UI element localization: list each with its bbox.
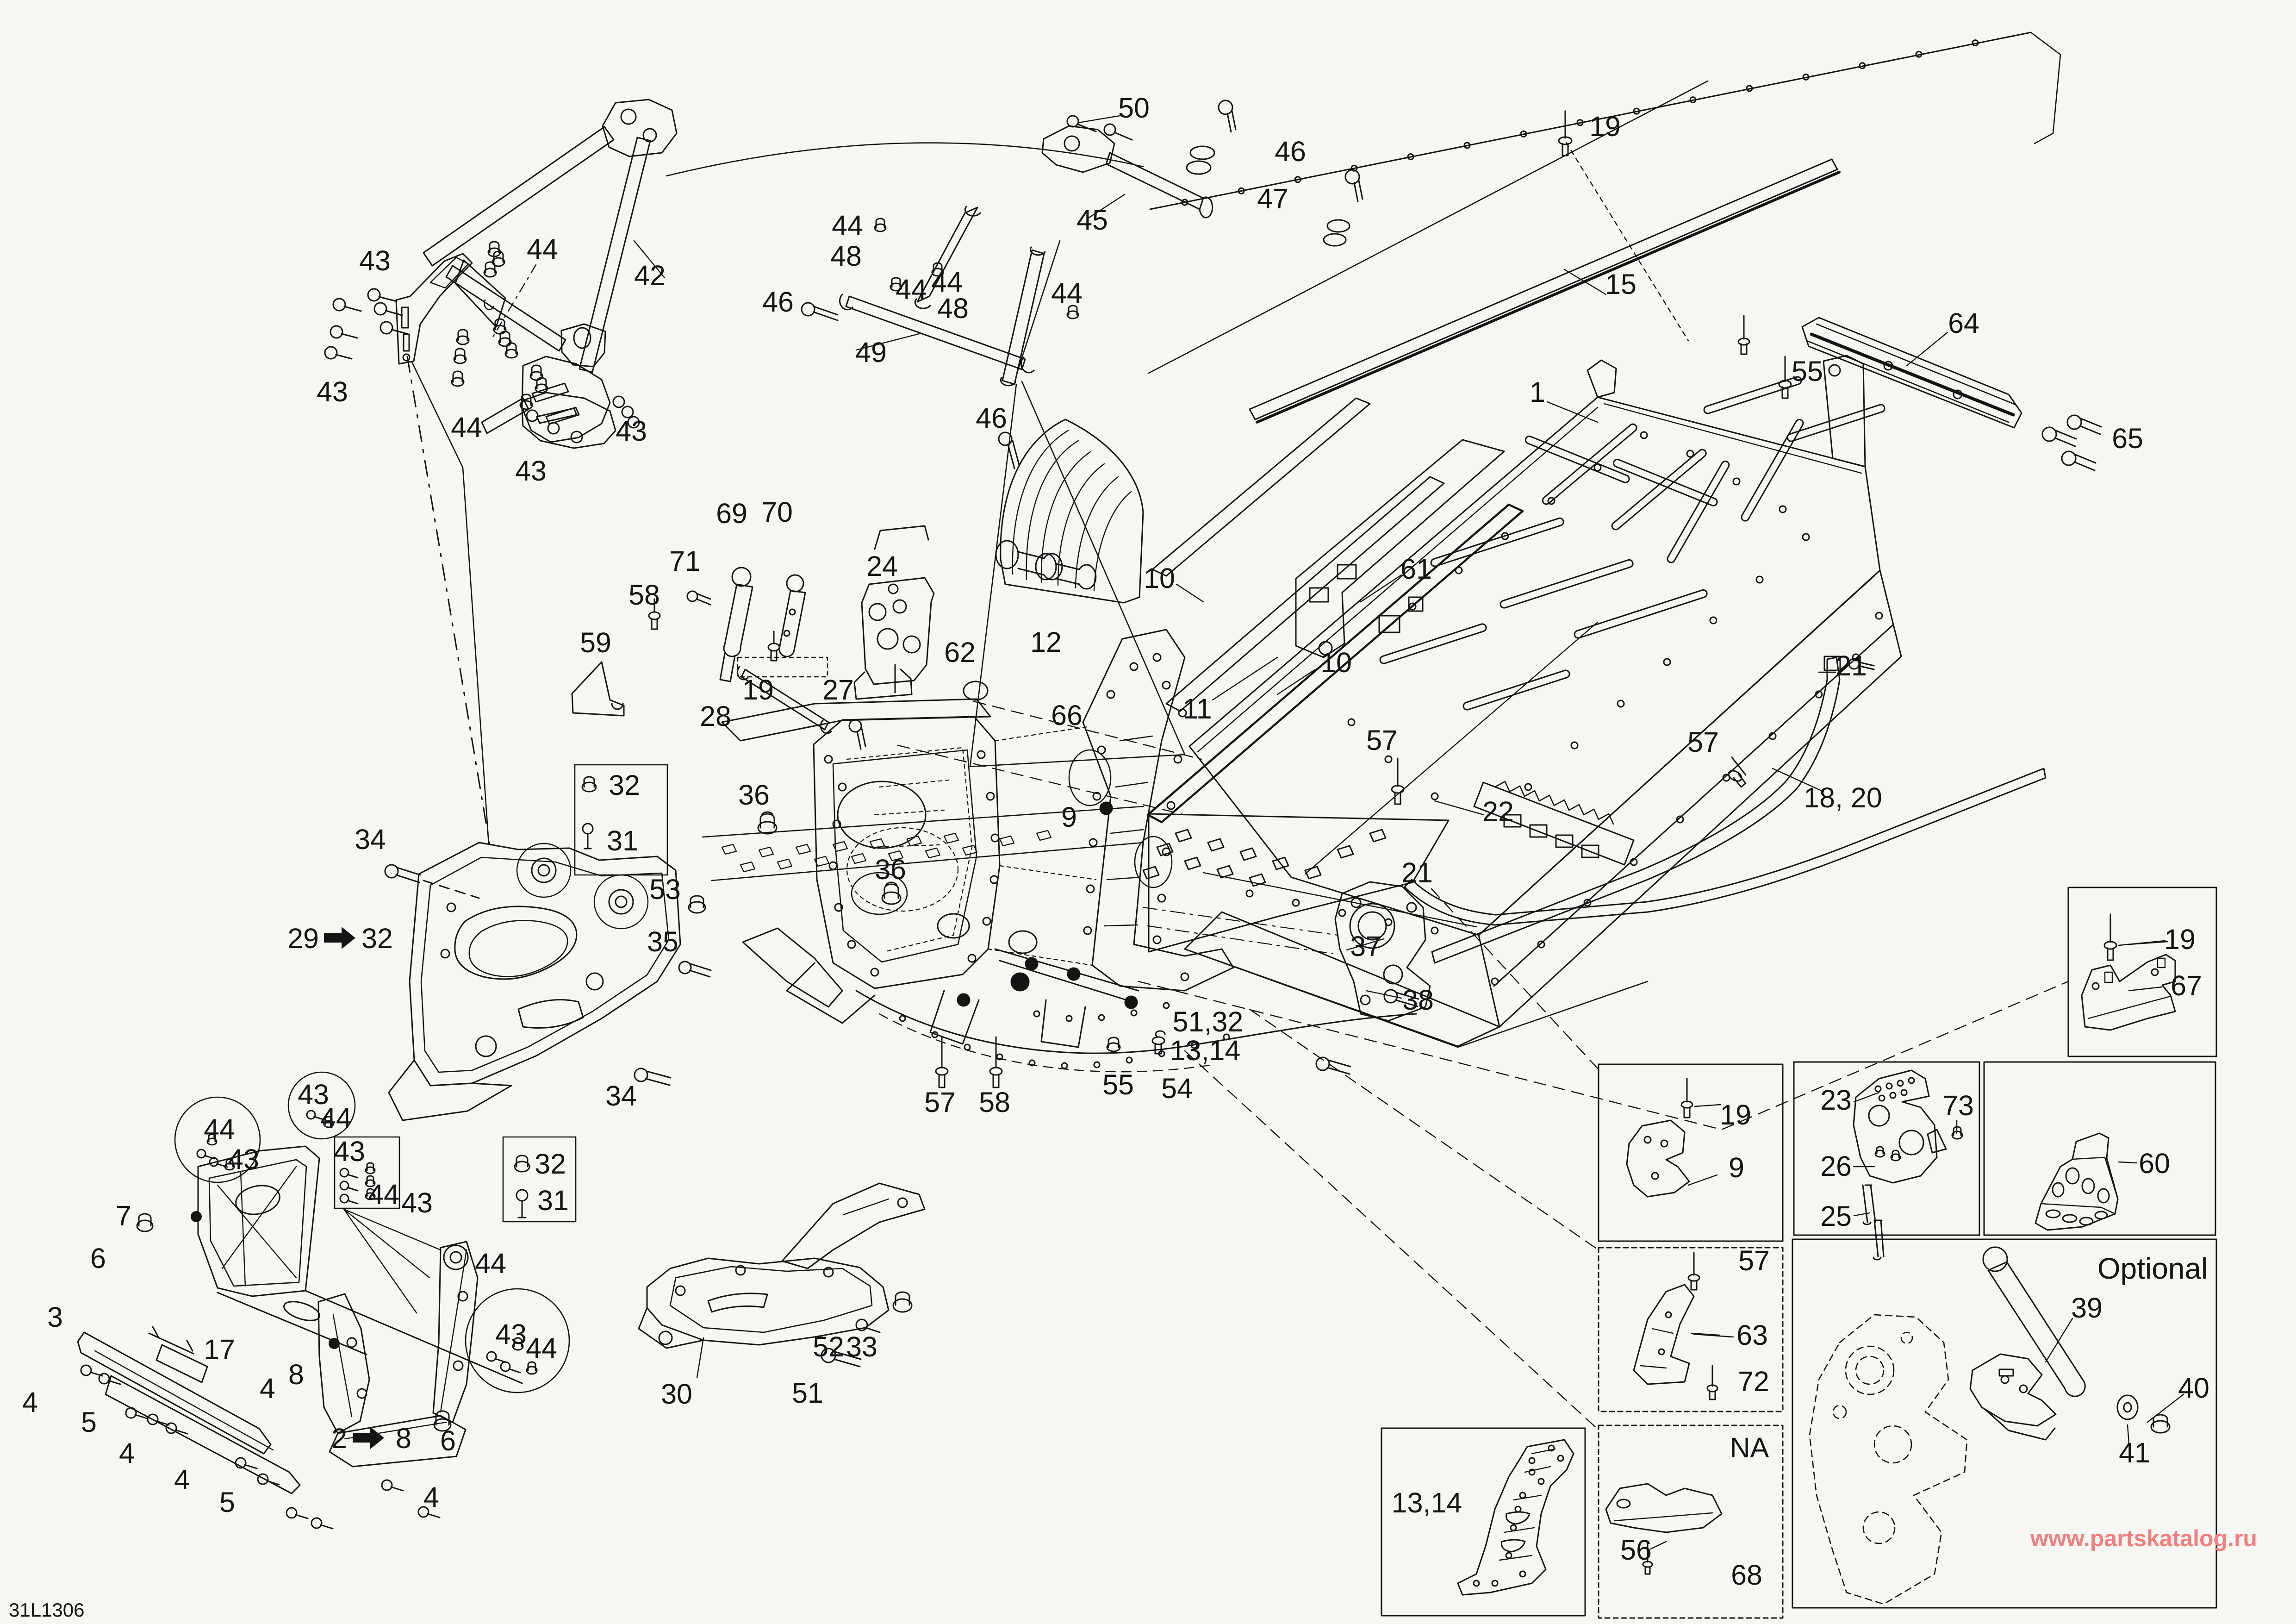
svg-text:43: 43 bbox=[317, 376, 348, 407]
svg-text:Optional: Optional bbox=[2097, 1252, 2208, 1285]
svg-text:71: 71 bbox=[669, 545, 701, 577]
svg-text:46: 46 bbox=[762, 286, 794, 318]
svg-text:44: 44 bbox=[1051, 277, 1083, 309]
svg-text:39: 39 bbox=[2071, 1292, 2103, 1324]
svg-text:44: 44 bbox=[204, 1113, 235, 1145]
svg-text:43: 43 bbox=[359, 245, 391, 276]
svg-text:65: 65 bbox=[2112, 423, 2143, 454]
svg-text:68: 68 bbox=[1731, 1559, 1762, 1591]
svg-text:9: 9 bbox=[1061, 801, 1077, 833]
svg-text:4: 4 bbox=[22, 1387, 38, 1418]
svg-text:37: 37 bbox=[1350, 931, 1381, 962]
svg-text:17: 17 bbox=[204, 1334, 235, 1365]
svg-text:12: 12 bbox=[1030, 626, 1062, 658]
svg-text:48: 48 bbox=[937, 293, 969, 324]
svg-text:57: 57 bbox=[924, 1087, 956, 1118]
svg-text:63: 63 bbox=[1736, 1319, 1768, 1351]
svg-text:44: 44 bbox=[320, 1102, 352, 1134]
svg-text:69: 69 bbox=[716, 498, 747, 529]
svg-text:72: 72 bbox=[1738, 1366, 1769, 1397]
svg-text:50: 50 bbox=[1118, 92, 1150, 124]
svg-text:44: 44 bbox=[451, 412, 482, 443]
svg-text:15: 15 bbox=[1605, 269, 1636, 300]
svg-text:51,32: 51,32 bbox=[1173, 1006, 1244, 1037]
svg-text:51: 51 bbox=[792, 1377, 823, 1409]
svg-text:56: 56 bbox=[1620, 1534, 1652, 1566]
svg-text:23: 23 bbox=[1820, 1084, 1852, 1116]
svg-text:13,14: 13,14 bbox=[1392, 1487, 1462, 1518]
svg-text:13,14: 13,14 bbox=[1170, 1035, 1241, 1066]
svg-text:43: 43 bbox=[401, 1187, 433, 1218]
svg-text:40: 40 bbox=[2178, 1372, 2209, 1404]
svg-text:28: 28 bbox=[700, 700, 731, 732]
svg-text:27: 27 bbox=[822, 674, 854, 706]
svg-text:24: 24 bbox=[866, 550, 898, 582]
svg-text:44: 44 bbox=[896, 274, 927, 305]
svg-text:59: 59 bbox=[580, 627, 611, 658]
svg-text:31L1306: 31L1306 bbox=[9, 1599, 85, 1621]
svg-text:43: 43 bbox=[495, 1318, 527, 1350]
svg-text:10: 10 bbox=[1144, 562, 1175, 594]
svg-text:19: 19 bbox=[1720, 1099, 1751, 1131]
svg-text:10: 10 bbox=[1320, 647, 1352, 678]
svg-text:1: 1 bbox=[1530, 376, 1545, 408]
svg-text:21: 21 bbox=[1836, 650, 1867, 681]
svg-text:32: 32 bbox=[361, 923, 393, 954]
svg-text:73: 73 bbox=[1942, 1090, 1974, 1121]
svg-text:30: 30 bbox=[661, 1378, 692, 1410]
svg-text:3: 3 bbox=[47, 1301, 63, 1333]
svg-text:34: 34 bbox=[605, 1080, 637, 1112]
svg-text:52: 52 bbox=[813, 1331, 844, 1362]
svg-text:33: 33 bbox=[846, 1331, 877, 1362]
svg-text:29: 29 bbox=[287, 923, 319, 954]
svg-text:21: 21 bbox=[1401, 857, 1433, 888]
svg-text:9: 9 bbox=[1729, 1152, 1744, 1183]
svg-text:19: 19 bbox=[1589, 111, 1621, 142]
svg-text:32: 32 bbox=[535, 1148, 566, 1180]
svg-text:19: 19 bbox=[742, 674, 774, 706]
svg-text:57: 57 bbox=[1687, 726, 1719, 758]
svg-text:31: 31 bbox=[537, 1185, 569, 1216]
svg-text:58: 58 bbox=[979, 1087, 1010, 1118]
svg-text:8: 8 bbox=[288, 1359, 304, 1390]
svg-text:44: 44 bbox=[832, 210, 863, 241]
svg-text:www.partskatalog.ru: www.partskatalog.ru bbox=[2030, 1525, 2257, 1551]
svg-text:43: 43 bbox=[616, 415, 647, 447]
svg-text:41: 41 bbox=[2119, 1437, 2150, 1468]
svg-text:7: 7 bbox=[116, 1200, 131, 1231]
svg-text:44: 44 bbox=[526, 1332, 557, 1364]
svg-text:61: 61 bbox=[1400, 553, 1432, 585]
svg-text:5: 5 bbox=[219, 1487, 235, 1518]
svg-text:43: 43 bbox=[515, 455, 547, 487]
svg-text:48: 48 bbox=[830, 240, 862, 272]
svg-text:58: 58 bbox=[628, 579, 660, 611]
svg-text:67: 67 bbox=[2171, 970, 2202, 1001]
svg-text:57: 57 bbox=[1738, 1245, 1770, 1276]
svg-text:4: 4 bbox=[423, 1481, 439, 1513]
svg-text:8: 8 bbox=[396, 1423, 411, 1454]
svg-text:44: 44 bbox=[475, 1248, 506, 1279]
svg-text:6: 6 bbox=[90, 1243, 106, 1274]
svg-text:36: 36 bbox=[738, 779, 770, 811]
svg-text:31: 31 bbox=[607, 825, 638, 856]
svg-text:54: 54 bbox=[1161, 1073, 1193, 1104]
svg-text:4: 4 bbox=[119, 1437, 135, 1469]
svg-text:32: 32 bbox=[609, 769, 640, 801]
svg-text:45: 45 bbox=[1076, 204, 1108, 236]
svg-text:25: 25 bbox=[1820, 1200, 1852, 1232]
svg-text:36: 36 bbox=[875, 854, 906, 885]
svg-text:43: 43 bbox=[334, 1136, 365, 1167]
svg-text:18, 20: 18, 20 bbox=[1804, 782, 1882, 813]
svg-text:NA: NA bbox=[1730, 1432, 1769, 1463]
svg-text:22: 22 bbox=[1482, 796, 1514, 827]
svg-text:19: 19 bbox=[2164, 924, 2196, 955]
svg-text:38: 38 bbox=[1402, 984, 1434, 1016]
svg-text:66: 66 bbox=[1051, 700, 1083, 731]
svg-text:35: 35 bbox=[647, 926, 678, 957]
svg-text:2: 2 bbox=[331, 1423, 347, 1454]
svg-text:26: 26 bbox=[1820, 1150, 1852, 1182]
svg-text:44: 44 bbox=[527, 233, 558, 265]
svg-text:34: 34 bbox=[355, 824, 386, 855]
svg-text:44: 44 bbox=[368, 1179, 399, 1210]
svg-text:11: 11 bbox=[1182, 693, 1212, 725]
svg-text:55: 55 bbox=[1102, 1069, 1134, 1100]
svg-text:47: 47 bbox=[1257, 183, 1288, 214]
svg-text:55: 55 bbox=[1792, 356, 1823, 387]
svg-text:49: 49 bbox=[855, 337, 887, 368]
svg-text:43: 43 bbox=[228, 1143, 259, 1175]
svg-text:53: 53 bbox=[649, 874, 681, 905]
svg-text:46: 46 bbox=[1275, 136, 1306, 167]
svg-text:57: 57 bbox=[1366, 725, 1398, 756]
svg-text:46: 46 bbox=[976, 402, 1007, 434]
svg-text:70: 70 bbox=[761, 496, 793, 528]
svg-text:60: 60 bbox=[2139, 1148, 2170, 1179]
svg-text:4: 4 bbox=[174, 1464, 190, 1495]
svg-text:42: 42 bbox=[634, 260, 666, 291]
svg-text:4: 4 bbox=[260, 1373, 275, 1404]
svg-text:64: 64 bbox=[1948, 307, 1979, 339]
svg-text:62: 62 bbox=[944, 637, 976, 668]
svg-text:6: 6 bbox=[440, 1425, 456, 1456]
svg-text:5: 5 bbox=[81, 1406, 97, 1438]
